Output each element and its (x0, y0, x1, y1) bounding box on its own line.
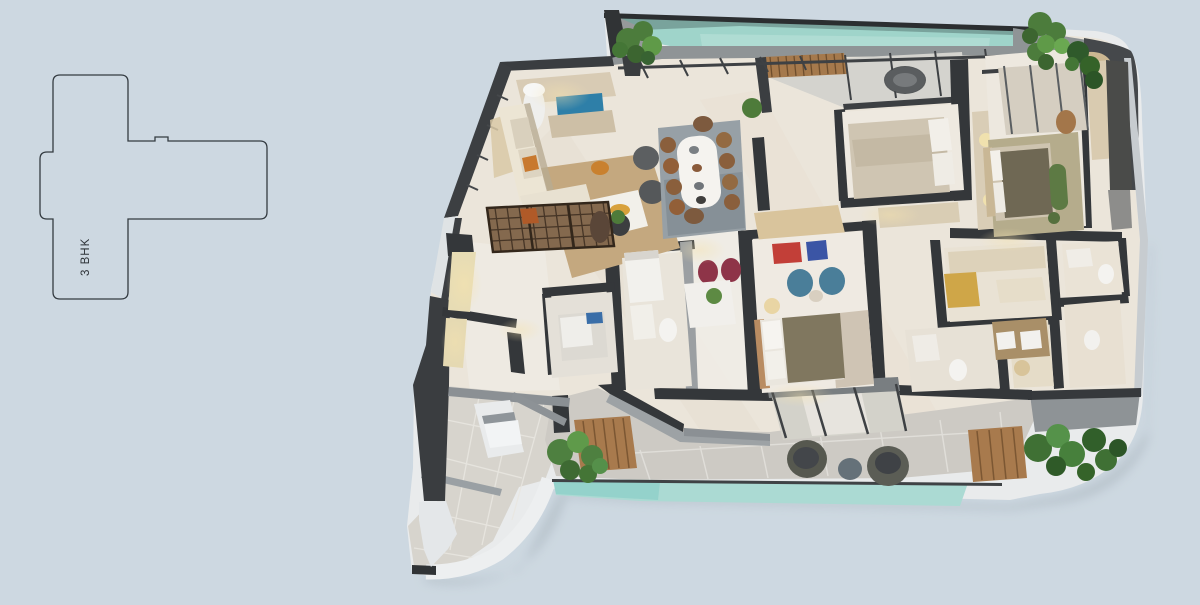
svg-text:3 BHK: 3 BHK (80, 238, 92, 276)
